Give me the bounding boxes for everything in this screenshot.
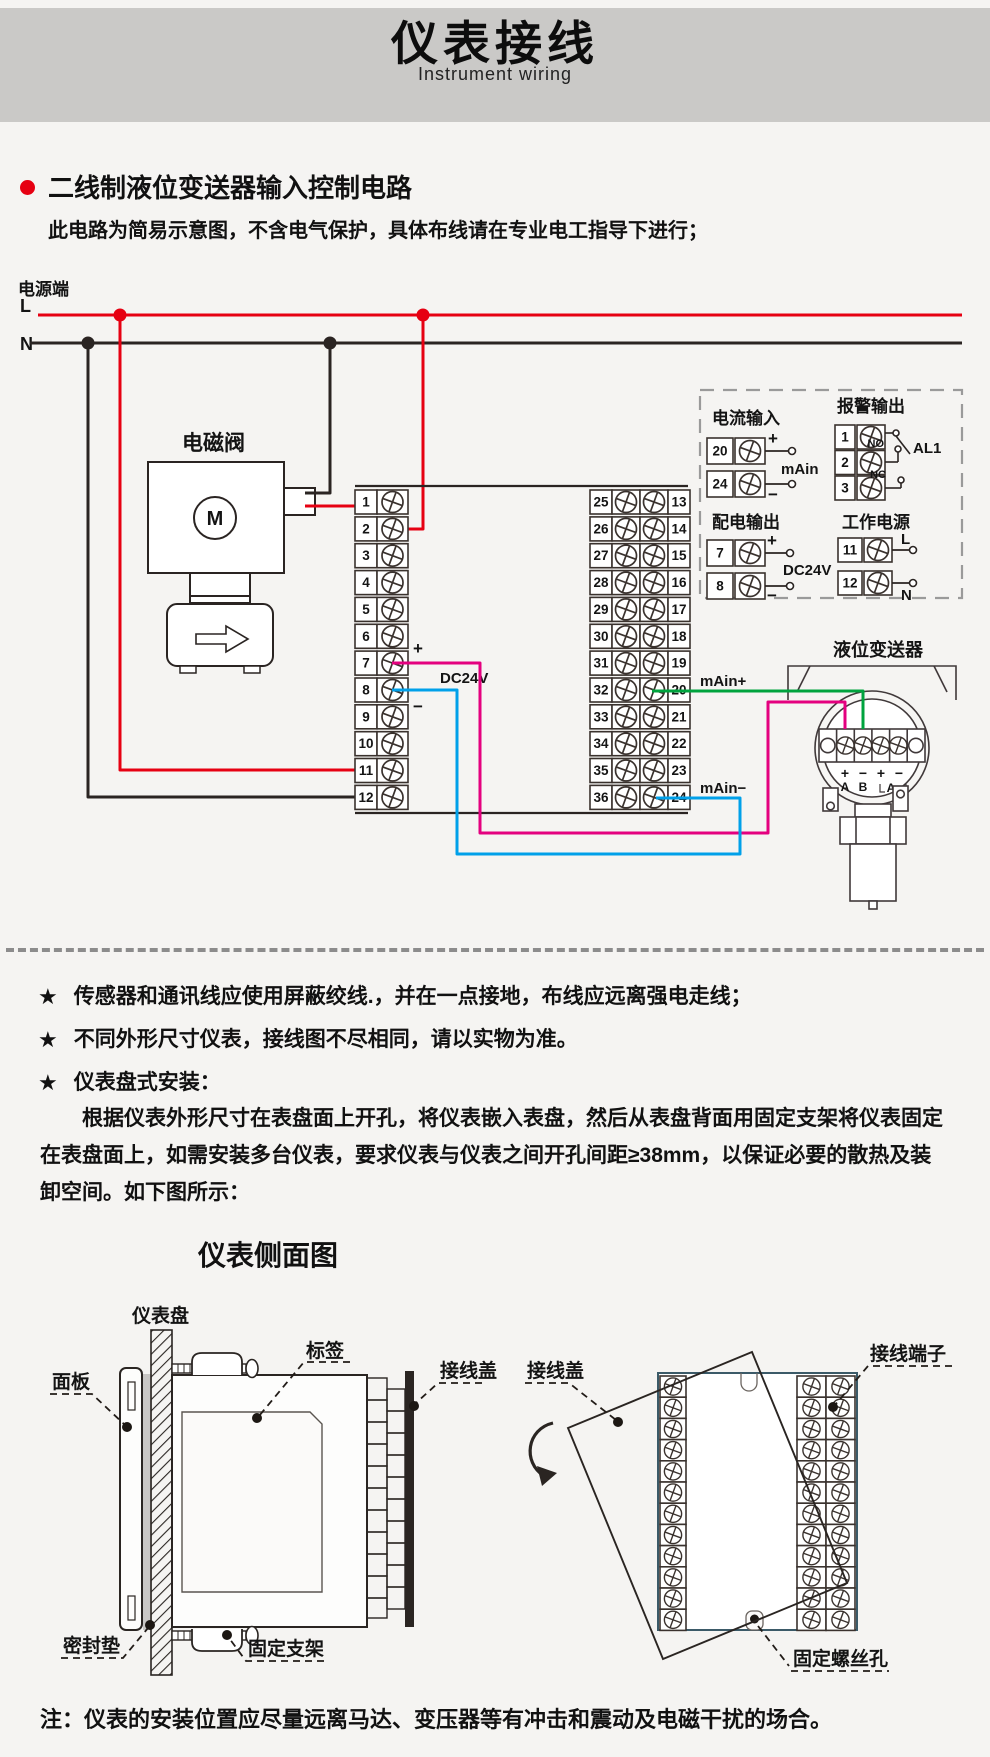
footer-note: 注：仪表的安装位置应尽量远离马达、变压器等有冲击和震动及电磁干扰的场合。	[40, 1702, 970, 1734]
nc-label: NC	[870, 469, 886, 481]
front-panel-label: 面板	[52, 1370, 91, 1393]
svg-text:28: 28	[593, 575, 609, 590]
svg-text:8: 8	[716, 579, 724, 594]
svg-text:14: 14	[671, 521, 687, 536]
side-view-diagram: 仪表盘	[120, 1304, 414, 1675]
svg-text:B: B	[859, 780, 868, 794]
section-divider	[6, 948, 984, 952]
solenoid-label: 电磁阀	[182, 431, 245, 455]
svg-text:−: −	[767, 586, 777, 605]
svg-text:6: 6	[362, 629, 370, 644]
no-label: NO	[868, 438, 885, 450]
svg-text:9: 9	[362, 709, 370, 724]
svg-text:11: 11	[359, 763, 374, 778]
svg-text:26: 26	[593, 521, 609, 536]
svg-text:19: 19	[671, 656, 686, 671]
svg-text:2: 2	[841, 455, 849, 470]
current-input-title: 电流输入	[712, 408, 780, 428]
svg-text:+: +	[841, 765, 849, 781]
svg-text:4: 4	[362, 575, 370, 590]
dc24v-out-label: DC24V	[783, 562, 831, 579]
rear-view-diagram	[530, 1352, 857, 1659]
svg-text:10: 10	[358, 736, 373, 751]
svg-text:20: 20	[712, 444, 727, 459]
section-title: 二线制液位变送器输入控制电路	[48, 168, 412, 205]
svg-text:2: 2	[362, 521, 370, 536]
svg-text:33: 33	[593, 709, 609, 724]
svg-text:−: −	[768, 485, 778, 504]
dist-output-title: 配电输出	[712, 512, 780, 532]
level-transmitter: 液位变送器 + − + − A B A	[788, 639, 956, 909]
section-intro: 此电路为简易示意图，不含电气保护，具体布线请在专业电工指导下进行；	[48, 214, 708, 243]
svg-text:1: 1	[841, 430, 849, 445]
al1-label: AL1	[913, 440, 941, 457]
svg-text:+: +	[877, 765, 885, 781]
work-n-label: N	[901, 587, 912, 604]
alarm-output-title: 报警输出	[837, 396, 905, 416]
svg-text:17: 17	[671, 602, 686, 617]
section-bullet-icon	[20, 180, 35, 195]
svg-text:−: −	[859, 765, 867, 781]
star-icon: ★	[38, 983, 58, 1011]
svg-text:23: 23	[671, 763, 687, 778]
svg-text:15: 15	[671, 548, 687, 563]
note-row-1: ★ 传感器和通讯线应使用屏蔽绞线.，并在一点接地，布线应远离强电走线；	[38, 983, 752, 1011]
main-in-plus-label: mAin+	[700, 673, 747, 690]
wire-cover-right-label: 接线盖	[527, 1359, 584, 1382]
svg-text:12: 12	[842, 576, 857, 591]
svg-text:3: 3	[362, 548, 370, 563]
svg-text:13: 13	[671, 495, 687, 510]
terminals-label: 接线端子	[870, 1342, 946, 1365]
transmitter-label: 液位变送器	[833, 639, 924, 660]
svg-text:3: 3	[841, 481, 849, 496]
io-legend-box: 电流输入 20 24 + − mAin 配电输出 7 8 + − DC24V 报…	[700, 390, 962, 605]
panel-board-label: 仪表盘	[131, 1304, 189, 1327]
bracket-label: 固定支架	[248, 1637, 324, 1660]
svg-text:18: 18	[671, 629, 687, 644]
page-title: 仪表接线	[0, 18, 990, 70]
screw-hole-label: 固定螺丝孔	[793, 1647, 888, 1670]
work-l-label: L	[901, 531, 910, 548]
svg-text:31: 31	[593, 656, 609, 671]
terminal-block-middle: 2513 2614 2715 2816 2917 3018 3119 3220 …	[590, 489, 747, 811]
main-label: mAin	[781, 461, 819, 478]
svg-text:24: 24	[712, 477, 728, 492]
svg-text:30: 30	[593, 629, 608, 644]
svg-text:7: 7	[362, 656, 370, 671]
motor-symbol: M	[207, 508, 224, 530]
svg-text:+: +	[767, 531, 777, 550]
svg-text:8: 8	[362, 683, 370, 698]
svg-text:29: 29	[593, 602, 608, 617]
svg-text:32: 32	[593, 683, 608, 698]
page-header: 仪表接线 Instrument wiring	[0, 8, 990, 122]
note-text-3: 仪表盘式安装：	[74, 1069, 221, 1097]
svg-text:1: 1	[362, 495, 370, 510]
dc24v-plus: +	[413, 639, 423, 658]
gasket-label: 密封垫	[63, 1634, 120, 1657]
svg-text:35: 35	[593, 763, 609, 778]
note-text-2: 不同外形尺寸仪表，接线图不尽相同，请以实物为准。	[74, 1026, 578, 1054]
svg-text:27: 27	[593, 548, 608, 563]
note-text-1: 传感器和通讯线应使用屏蔽绞线.，并在一点接地，布线应远离强电走线；	[74, 983, 752, 1011]
svg-text:A: A	[841, 780, 850, 794]
svg-text:+: +	[768, 429, 778, 448]
wire-cover-left-label: 接线盖	[440, 1359, 497, 1382]
svg-text:5: 5	[362, 602, 370, 617]
terminal-block-left: 1 2 3 4 5 6 7 8 9 10 11 12 + DC24V −	[355, 489, 488, 811]
svg-text:22: 22	[671, 736, 686, 751]
line-l-label: L	[20, 296, 31, 316]
installation-diagrams: 仪表盘 面板	[0, 1230, 990, 1700]
svg-text:25: 25	[593, 495, 609, 510]
solenoid-valve: 电磁阀 M	[148, 343, 383, 673]
main-in-minus-label: mAin−	[700, 780, 747, 797]
page-subtitle: Instrument wiring	[0, 64, 990, 85]
star-icon: ★	[38, 1026, 58, 1054]
dc24v-minus: −	[413, 697, 423, 716]
svg-text:34: 34	[593, 736, 609, 751]
svg-text:36: 36	[593, 790, 609, 805]
svg-text:11: 11	[843, 543, 858, 558]
note-row-2: ★ 不同外形尺寸仪表，接线图不尽相同，请以实物为准。	[38, 1026, 578, 1054]
install-paragraph: 根据仪表外形尺寸在表盘面上开孔，将仪表嵌入表盘，然后从表盘背面用固定支架将仪表固…	[40, 1100, 952, 1211]
svg-text:−: −	[895, 765, 903, 781]
note-row-3: ★ 仪表盘式安装：	[38, 1069, 221, 1097]
tag-label: 标签	[306, 1339, 345, 1362]
page: 仪表接线 Instrument wiring 二线制液位变送器输入控制电路 此电…	[0, 0, 990, 1757]
svg-text:16: 16	[671, 575, 687, 590]
svg-text:21: 21	[671, 709, 687, 724]
wiring-schematic: 电源端 L N 电磁阀 M	[0, 268, 990, 948]
work-power-title: 工作电源	[842, 512, 910, 532]
svg-text:12: 12	[358, 790, 373, 805]
svg-text:7: 7	[716, 546, 724, 561]
star-icon: ★	[38, 1069, 58, 1097]
